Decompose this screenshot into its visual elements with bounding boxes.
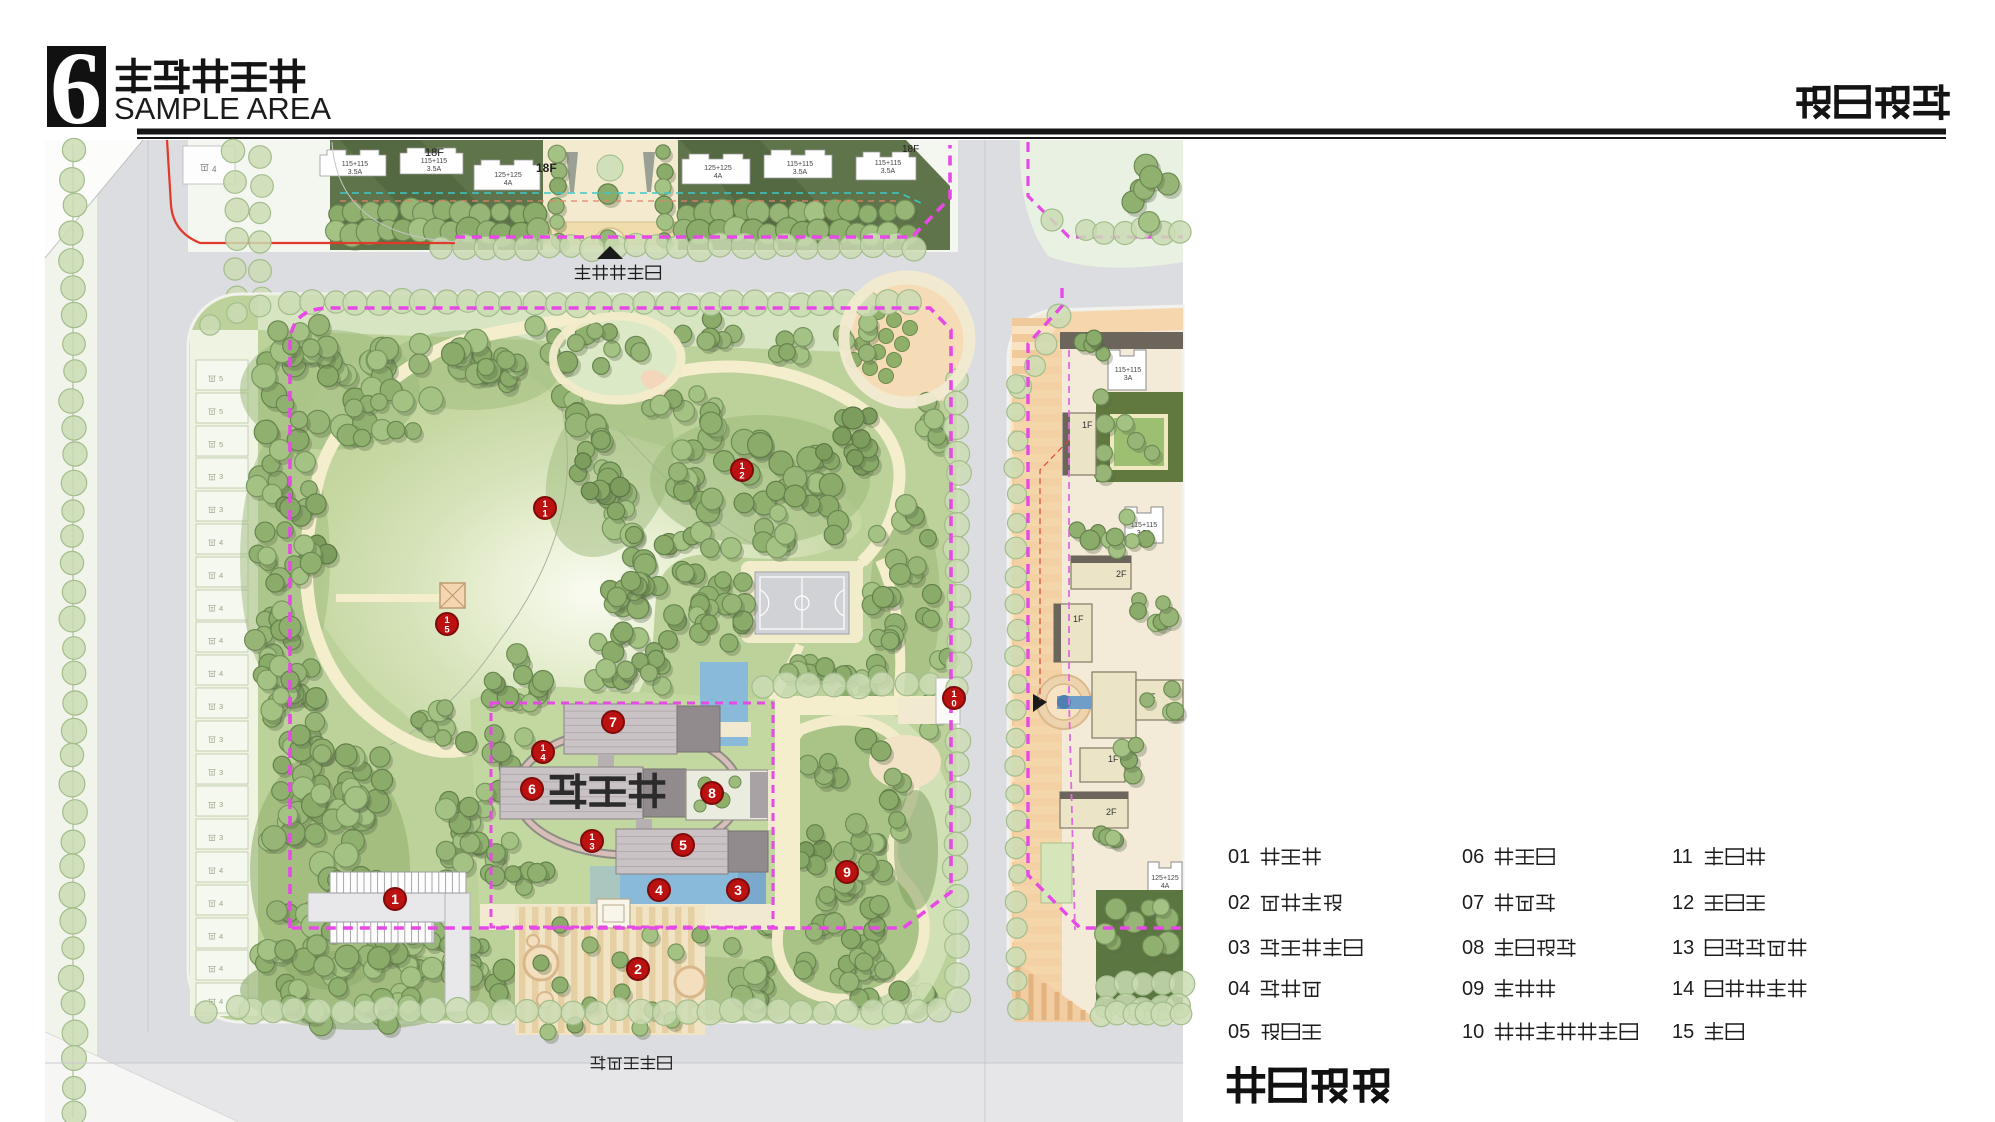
svg-text:18F: 18F — [425, 147, 444, 159]
svg-text:5: 5 — [679, 837, 687, 853]
svg-text:2: 2 — [634, 961, 642, 977]
svg-text:18F: 18F — [902, 144, 919, 155]
svg-text:11: 11 — [1672, 846, 1693, 868]
svg-text:09: 09 — [1462, 978, 1484, 1000]
svg-text:15: 15 — [1672, 1021, 1694, 1043]
svg-text:5: 5 — [219, 374, 223, 383]
svg-text:115+115: 115+115 — [1115, 367, 1142, 374]
svg-text:3A: 3A — [1124, 375, 1133, 382]
svg-text:6: 6 — [528, 781, 536, 797]
svg-text:4: 4 — [219, 866, 223, 875]
svg-text:125+125: 125+125 — [704, 165, 732, 172]
svg-text:1F: 1F — [1073, 614, 1084, 624]
svg-text:8: 8 — [708, 785, 716, 801]
svg-text:3: 3 — [219, 505, 223, 514]
svg-text:7: 7 — [609, 714, 617, 730]
svg-text:4: 4 — [219, 997, 223, 1006]
svg-text:12: 12 — [1672, 892, 1694, 914]
svg-text:03: 03 — [1228, 937, 1250, 959]
svg-text:4: 4 — [219, 571, 223, 580]
svg-text:4A: 4A — [714, 173, 723, 180]
svg-text:115+115: 115+115 — [787, 161, 814, 168]
svg-text:3.5A: 3.5A — [793, 169, 808, 176]
svg-text:3: 3 — [734, 882, 742, 898]
svg-text:4: 4 — [219, 964, 223, 973]
svg-text:4: 4 — [655, 882, 663, 898]
svg-text:125+125: 125+125 — [1151, 875, 1179, 882]
svg-text:4: 4 — [219, 636, 223, 645]
svg-text:04: 04 — [1228, 978, 1250, 1000]
svg-text:18F: 18F — [536, 161, 557, 175]
svg-text:3: 3 — [219, 702, 223, 711]
svg-text:5: 5 — [444, 625, 450, 636]
svg-text:2: 2 — [739, 471, 744, 482]
svg-text:1: 1 — [542, 509, 548, 520]
svg-text:115+115: 115+115 — [421, 158, 448, 165]
svg-text:4: 4 — [219, 604, 223, 613]
svg-text:3: 3 — [589, 842, 594, 853]
svg-text:4A: 4A — [1161, 883, 1170, 890]
svg-text:1F: 1F — [1082, 420, 1093, 430]
svg-text:06: 06 — [1462, 846, 1484, 868]
svg-text:3: 3 — [219, 768, 223, 777]
svg-text:07: 07 — [1462, 892, 1484, 914]
svg-text:6: 6 — [50, 31, 102, 146]
svg-text:SAMPLE AREA: SAMPLE AREA — [114, 91, 331, 126]
svg-text:1: 1 — [391, 891, 399, 907]
svg-text:02: 02 — [1228, 892, 1250, 914]
svg-text:08: 08 — [1462, 937, 1484, 959]
svg-text:3.5A: 3.5A — [881, 168, 896, 175]
svg-text:115+115: 115+115 — [875, 160, 902, 167]
svg-text:3: 3 — [219, 800, 223, 809]
svg-text:3: 3 — [219, 833, 223, 842]
svg-text:13: 13 — [1672, 937, 1694, 959]
svg-text:0: 0 — [951, 699, 956, 710]
svg-text:125+125: 125+125 — [494, 172, 522, 179]
svg-text:4: 4 — [540, 753, 546, 764]
svg-text:05: 05 — [1228, 1021, 1250, 1043]
svg-text:4A: 4A — [504, 180, 513, 187]
svg-text:01: 01 — [1228, 846, 1250, 868]
svg-text:3.5A: 3.5A — [348, 169, 363, 176]
svg-text:5: 5 — [219, 440, 223, 449]
svg-text:4: 4 — [212, 165, 217, 174]
svg-text:3.5A: 3.5A — [427, 166, 442, 173]
svg-text:115+115: 115+115 — [342, 161, 369, 168]
svg-text:3: 3 — [219, 735, 223, 744]
svg-text:4: 4 — [219, 538, 223, 547]
svg-text:4: 4 — [219, 932, 223, 941]
svg-text:9: 9 — [843, 864, 851, 880]
svg-text:4: 4 — [219, 899, 223, 908]
svg-text:4: 4 — [219, 669, 223, 678]
svg-text:2F: 2F — [1116, 569, 1127, 579]
svg-text:3: 3 — [219, 472, 223, 481]
svg-text:14: 14 — [1672, 978, 1694, 1000]
svg-text:2F: 2F — [1106, 807, 1117, 817]
svg-text:5: 5 — [219, 407, 223, 416]
svg-text:10: 10 — [1462, 1021, 1484, 1043]
